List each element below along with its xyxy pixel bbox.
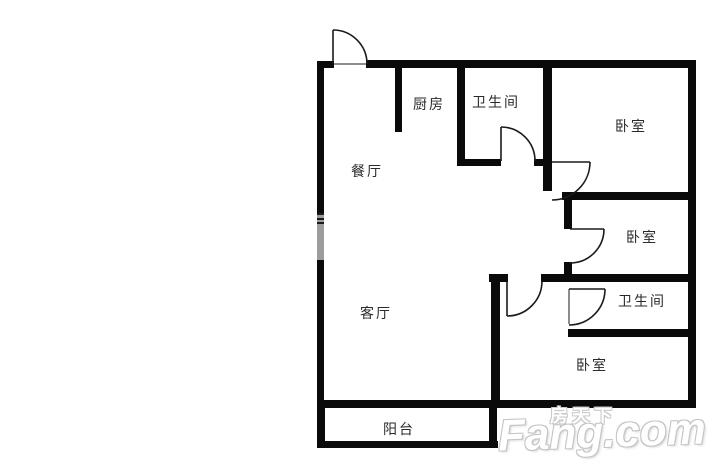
bathroom1-door-icon bbox=[501, 127, 535, 161]
wall bbox=[457, 60, 465, 166]
wall bbox=[366, 60, 696, 68]
floorplan-image: 厨房 卫生间 卧室 餐厅 卧室 卫生间 客厅 卧室 阳台 房天下 Fang.co… bbox=[0, 0, 713, 475]
wall bbox=[461, 159, 501, 166]
room-label-bedroom2: 卧室 bbox=[626, 227, 658, 247]
floorplan-drawing bbox=[0, 0, 713, 475]
room-label-bedroom3: 卧室 bbox=[576, 355, 608, 375]
room-label-balcony: 阳台 bbox=[383, 419, 415, 439]
room-label-bathroom2: 卫生间 bbox=[618, 291, 666, 311]
bathroom2-door-icon bbox=[569, 289, 605, 325]
wall bbox=[317, 400, 696, 408]
wall bbox=[562, 192, 696, 200]
window bbox=[317, 213, 324, 260]
wall bbox=[395, 62, 402, 132]
wall bbox=[317, 441, 498, 448]
room-label-living: 客厅 bbox=[360, 303, 392, 323]
wall bbox=[491, 274, 500, 408]
entry-door-icon bbox=[333, 30, 367, 64]
wall bbox=[489, 400, 497, 448]
room-label-bathroom1: 卫生间 bbox=[472, 92, 520, 112]
room-label-kitchen: 厨房 bbox=[413, 94, 445, 114]
room-label-bedroom1: 卧室 bbox=[615, 116, 647, 136]
wall bbox=[568, 329, 689, 337]
bedroom3-door-icon bbox=[507, 281, 542, 316]
wall bbox=[688, 60, 696, 408]
wall bbox=[541, 274, 696, 282]
bedroom2-door-icon bbox=[570, 229, 604, 263]
room-label-dining: 餐厅 bbox=[351, 161, 383, 181]
wall bbox=[564, 196, 572, 229]
wall bbox=[543, 60, 552, 191]
